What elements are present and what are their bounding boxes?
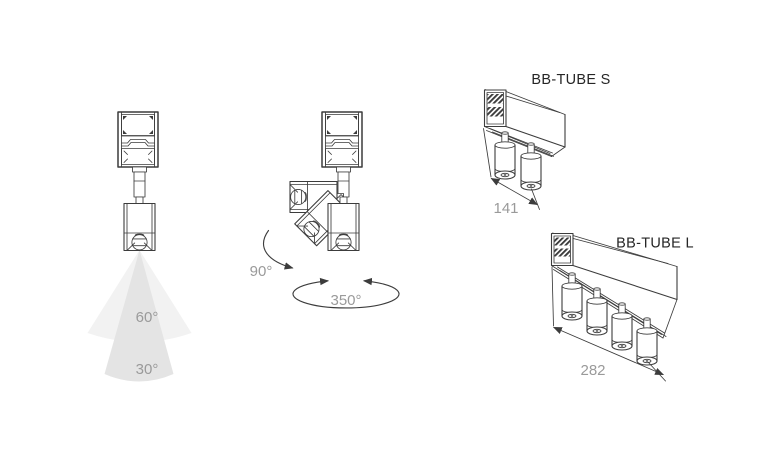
- tube-light: [495, 132, 515, 179]
- track-adapter: [118, 112, 158, 167]
- tube-light: [637, 318, 657, 365]
- rotation-angle-label: 350°: [330, 292, 361, 309]
- spotlight-head-vertical: [328, 197, 359, 251]
- product-diagram-canvas: 60° 30° 90° 350° BB-TUBE S: [0, 0, 769, 450]
- figure-rotation: 90° 350°: [250, 112, 399, 309]
- stem: [337, 167, 351, 197]
- lighting-spec-diagram: 60° 30° 90° 350° BB-TUBE S: [0, 0, 769, 450]
- stem: [133, 167, 147, 197]
- beam-angle-60-label: 60°: [136, 309, 159, 326]
- bb-tube-l-length-label: 282: [580, 362, 605, 379]
- tube-light: [612, 303, 632, 350]
- bb-tube-s-title: BB-TUBE S: [531, 72, 610, 88]
- beam-angle-30-label: 30°: [136, 361, 159, 378]
- tube-light: [587, 288, 607, 335]
- spotlight-head: [124, 197, 155, 251]
- bb-tube-s-length-label: 141: [493, 200, 518, 217]
- tilt-angle-label: 90°: [250, 263, 273, 280]
- bb-tube-l-title: BB-TUBE L: [616, 236, 694, 252]
- figure-beam-angles: 60° 30°: [88, 112, 192, 382]
- track-adapter: [322, 112, 362, 167]
- figure-bb-tube-l: BB-TUBE L 282: [552, 233, 694, 381]
- figure-bb-tube-s: BB-TUBE S 141: [484, 72, 611, 217]
